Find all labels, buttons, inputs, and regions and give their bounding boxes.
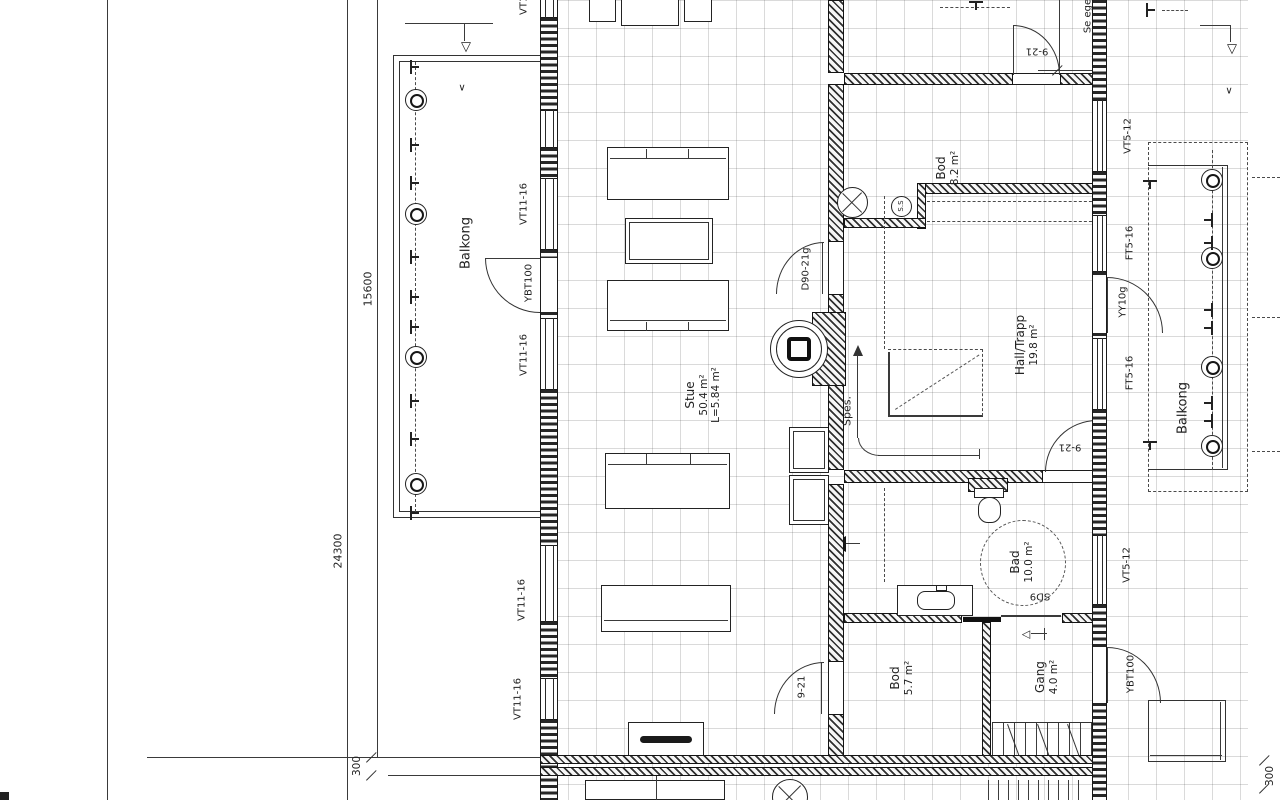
railing-line [1252,317,1280,318]
room-name: Bod [889,661,903,695]
detail-marker-line [846,543,860,544]
door-leaf [1107,647,1108,703]
window [1092,338,1107,410]
room-area: 5.7 m² [903,661,915,695]
window-label: VT11-16 [512,678,524,720]
door-opening [1092,277,1107,333]
window [1092,100,1107,172]
overhead-dashed-line [927,201,1097,202]
railing-post [405,346,427,368]
window [540,545,558,622]
extension-line [388,775,540,776]
chair [684,0,712,22]
railing-line [1252,177,1280,178]
dimension-line [347,0,348,800]
section-arrow-icon: ▽ [1227,42,1237,57]
dim-300-left: 300 [351,756,363,776]
window-label: VT11-16 [518,183,530,225]
dim-tick [366,770,377,781]
room-name: Stue [684,367,698,423]
railing-t-post [410,506,420,520]
sofa-back-line [608,464,727,465]
extension-line [147,757,540,758]
railing-t-post [1146,3,1156,17]
door-label-yy10g: YY10g [1117,286,1129,317]
wall-segment [540,390,558,545]
room-label-hall: Hall/Trapp 19.8 m² [1014,315,1040,375]
sofa [607,147,729,200]
wall-segment [540,767,1106,776]
wall-segment [540,18,558,110]
stair-dashed-edge [982,349,983,416]
dim-15600: 15600 [363,272,376,307]
window-label: VT11-16 [518,334,530,376]
window-label-vt512-upper: VT5-12 [1122,118,1134,154]
dim-24300: 24300 [333,534,346,569]
section-line [1200,25,1231,26]
door-leaf [821,662,822,714]
room-label-gang: Gang 4.0 m² [1034,660,1060,694]
railing-t-post [1203,414,1213,428]
railing-post [1201,247,1223,269]
floor-plan-sheet: 15600 24300 300 300 ▽ ∨ ▽ ∨ Balko [0,0,1280,800]
door-label-921-top: 9-21 [1026,46,1049,57]
door-label-ybt100-right: YBT100 [1125,655,1137,693]
window-label-ft516-upper: FT5-16 [1124,226,1136,260]
wall-segment [540,755,1106,764]
furniture [585,780,725,800]
window [540,318,558,390]
window [540,110,558,148]
room-length: L=5.84 m² [710,367,722,423]
room-area: 19.8 m² [1028,315,1040,375]
window-label-ft516-lower: FT5-16 [1124,356,1136,390]
door-label-921-stue: 9-21 [796,676,808,699]
cabinet [789,475,829,525]
room-area: 4.0 m² [1048,660,1060,694]
wall-segment [1092,0,1107,100]
window-label: VT11-16 [516,579,528,621]
room-area: 10.0 m² [1023,541,1035,582]
railing-t-post [1203,321,1213,335]
wall-segment [540,622,558,678]
railing-post [405,473,427,495]
sofa [605,453,730,509]
section-line [464,23,465,41]
landing-outline [1148,700,1226,762]
room-label-balkong-left: Balkong [460,217,475,269]
stair-walkline [857,354,858,438]
stair-dashed-edge [888,349,983,350]
stair-handrail [888,415,983,417]
sofa-divider [690,454,691,465]
door-label-ybt100-left: YBT100 [523,264,535,302]
cabinet [789,427,829,473]
window [1092,535,1107,605]
overhead-dashed-line [884,196,885,349]
sofa-divider [646,322,647,331]
railing-t-post [1203,236,1213,250]
sofa-back-line [610,158,726,159]
door-leaf [1013,25,1014,75]
room-label-spes: Spes. [842,396,855,426]
railing-t-post [410,176,420,190]
landing-inner-line [1150,755,1222,756]
room-name: Hall/Trapp [1014,315,1028,375]
door-leaf [486,258,540,259]
dashed-partition [884,488,885,582]
wall-segment [828,84,844,242]
railing-t-post [410,138,420,152]
sofa-back-line [604,620,728,621]
railing-line [1252,451,1280,452]
railing-t-post [410,432,420,446]
chair [589,0,616,22]
margin-line [107,0,108,800]
window [1092,215,1107,272]
sofa-back-line [610,320,726,321]
door-leaf [656,776,657,800]
entry-arrow-tail [1044,628,1045,640]
door-label-d90: D90-21g [800,247,812,290]
window [540,0,558,18]
window [540,678,558,720]
wall-segment [844,73,1013,85]
railing-post [1201,169,1223,191]
room-name: Gang [1034,660,1048,694]
room-label-bad: Bad 10.0 m² [1009,541,1035,582]
table [621,0,679,26]
dim-300-right: 300 [1264,766,1276,786]
railing-post [1201,435,1223,457]
entry-arrow-icon: ◁ [1022,628,1030,641]
wall-segment [540,148,558,178]
railing-post [1201,356,1223,378]
wall-segment [982,622,991,757]
railing-t-post [410,320,420,334]
dimension-line [377,0,378,758]
landing-inner-line [1220,702,1221,760]
wall-segment [828,484,844,662]
wardrobe [988,780,1084,800]
corner-mark [0,792,9,800]
dimension-line [1038,70,1093,71]
section-arrow-icon: ▽ [461,40,471,55]
wall-segment [1092,410,1107,535]
railing-post [405,89,427,111]
room-label-bod-upper: Bod 8.2 m² [935,151,961,185]
overhead-dashed-line [927,221,1097,222]
room-label-bod-lower: Bod 5.7 m² [889,661,915,695]
wall-segment [844,218,926,228]
section-line [1230,25,1231,42]
railing-t-post [410,60,420,74]
door-leaf [1107,277,1108,333]
railing-t-post [410,290,420,304]
room-label-stue: Stue 50.4 m² L=5.84 m² [684,367,722,423]
room-label-balkong-right: Balkong [1177,382,1192,434]
railing-t-post [1143,441,1157,451]
door-label-sd9: SD9 [1030,591,1050,602]
railing-t-post [1203,213,1213,227]
room-name: Bod [935,151,949,185]
window [540,178,558,250]
wall-segment [828,0,844,73]
wall-segment [1092,172,1107,215]
dim-tick [1259,755,1270,766]
ss-label: S.S [897,200,905,211]
window-label: VT11-16 [518,0,530,15]
railing-t-post [969,1,983,11]
sofa-divider [688,322,689,331]
wall-segment [1092,605,1107,647]
room-area: 8.2 m² [949,151,961,185]
door-opening [540,258,558,312]
section-line [405,23,493,24]
sofa-divider [646,149,647,159]
stair-handrail [888,352,890,417]
sofa-divider [688,149,689,159]
railing-t-post [1203,396,1213,410]
coffee-table [625,218,713,264]
tv-screen [640,736,692,743]
railing-t-post [1203,303,1213,317]
wall-segment [1092,703,1107,800]
railing-t-post [1143,180,1157,190]
wood-stove-firebox [787,337,811,361]
stair-walkline-end [979,449,980,459]
stair-walkline [878,455,980,456]
sofa [607,280,729,331]
balcony-deck-inner [1222,167,1223,468]
door-opening [828,662,844,714]
sofa-divider [646,454,647,465]
railing-line [1162,10,1188,11]
door-opening [828,242,844,294]
door-opening [1092,647,1107,703]
door-label-921-hall: 9-21 [1059,442,1082,453]
sink [917,591,955,610]
wall-segment [844,470,1043,483]
window-label-vt512-lower: VT5-12 [1121,547,1133,583]
room-name: Bad [1009,541,1023,582]
wall-segment [540,250,558,258]
small-arrow-icon: ∨ [1225,86,1232,97]
sliding-door-track [1001,615,1061,617]
door-leaf [822,242,823,294]
sofa [601,585,731,632]
railing-t-post [410,394,420,408]
faucet [936,585,947,591]
railing-post [405,203,427,225]
railing-t-post [410,250,420,264]
dimension-line [1059,0,1060,70]
wall-segment [828,714,844,757]
toilet-bowl [978,497,1001,523]
room-area: 50.4 m² [698,367,710,423]
